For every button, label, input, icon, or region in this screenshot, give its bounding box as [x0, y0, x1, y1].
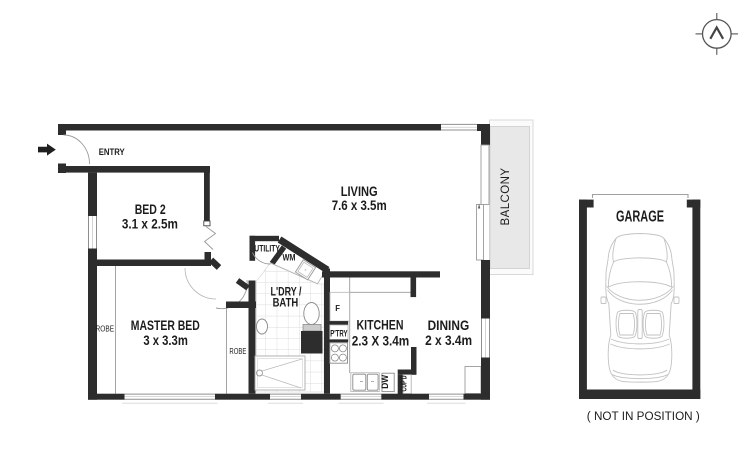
svg-text:CUP'D: CUP'D: [399, 375, 408, 391]
svg-text:BALCONY: BALCONY: [498, 168, 512, 226]
svg-text:3.1 x 2.5m: 3.1 x 2.5m: [122, 216, 178, 231]
svg-text:UTILITY: UTILITY: [254, 244, 280, 254]
svg-text:F: F: [335, 304, 340, 313]
svg-text:ROBE: ROBE: [96, 324, 115, 334]
svg-text:WM: WM: [283, 253, 296, 263]
svg-text:MASTER BED: MASTER BED: [131, 318, 200, 333]
svg-text:3 x 3.3m: 3 x 3.3m: [143, 333, 188, 348]
svg-text:P'TRY: P'TRY: [330, 329, 347, 339]
svg-text:2 x 3.4m: 2 x 3.4m: [425, 333, 472, 348]
svg-text:ENTRY: ENTRY: [99, 147, 126, 158]
svg-text:LIVING: LIVING: [341, 184, 378, 199]
svg-text:ROBE: ROBE: [229, 346, 246, 356]
svg-text:GARAGE: GARAGE: [616, 209, 664, 226]
svg-text:DINING: DINING: [428, 318, 470, 333]
svg-text:7.6 x 3.5m: 7.6 x 3.5m: [332, 198, 387, 213]
svg-text:( NOT IN POSITION ): ( NOT IN POSITION ): [587, 411, 700, 423]
svg-text:DW: DW: [380, 374, 390, 388]
svg-text:KITCHEN: KITCHEN: [357, 318, 404, 333]
svg-text:2.3 X 3.4m: 2.3 X 3.4m: [352, 333, 410, 348]
svg-text:BED 2: BED 2: [135, 202, 166, 217]
svg-text:BATH: BATH: [273, 296, 299, 310]
